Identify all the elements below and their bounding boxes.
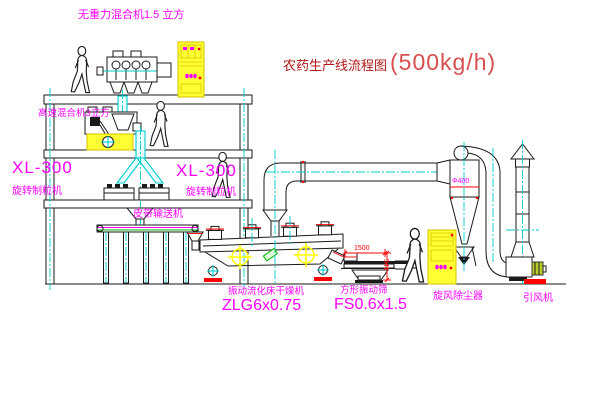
page-title: 农药生产线流程图 (500kg/h) bbox=[283, 49, 496, 76]
indicator-light-icon bbox=[451, 234, 454, 237]
person-figure bbox=[402, 228, 423, 282]
indicator-light-icon bbox=[198, 48, 201, 51]
granulator-right bbox=[139, 184, 169, 200]
label-granulator-model-left: XL-300 bbox=[12, 159, 73, 176]
dimension-width-label: 1500 bbox=[354, 245, 370, 252]
induced-draft-fan bbox=[506, 257, 546, 284]
fan-base bbox=[524, 279, 546, 284]
label-dryer-name: 振动流化床干燥机 bbox=[228, 287, 304, 297]
roof-slab bbox=[44, 95, 252, 104]
label-weightless-mixer: 无重力混合机1.5 立方 bbox=[78, 10, 184, 21]
label-dryer-model: ZLG6x0.75 bbox=[222, 298, 301, 314]
control-cabinet-2 bbox=[428, 230, 456, 284]
label-cyclone: 旋风除尘器 bbox=[433, 292, 483, 302]
floor-slab-3 bbox=[44, 200, 252, 208]
label-granulator-name-right: 旋转制粒机 bbox=[186, 188, 236, 198]
cyclone-vortex-cap bbox=[454, 146, 468, 160]
dimension-height-label: 541 bbox=[382, 259, 389, 271]
dryer-vibration-motor-right bbox=[314, 264, 332, 281]
dryer-discharge-chute bbox=[328, 250, 346, 264]
cyclone-inlet bbox=[437, 160, 450, 184]
person-figure bbox=[71, 46, 89, 92]
conveyor-legs bbox=[104, 232, 189, 283]
granulator-left bbox=[104, 184, 134, 200]
label-high-speed-mixer: 高速混合机3立方 bbox=[38, 109, 110, 119]
cad-flow-diagram: 无重力混合机1.5 立方 农药生产线流程图 (500kg/h) 高速混合机3立方… bbox=[0, 0, 600, 403]
label-granulator-name-left: 旋转制粒机 bbox=[12, 187, 62, 197]
belt-conveyor bbox=[97, 225, 203, 283]
label-induced-draft-fan: 引风机 bbox=[523, 294, 553, 304]
label-screen-name: 方形振动筛 bbox=[340, 286, 388, 296]
label-granulator-model-right: XL-300 bbox=[176, 162, 237, 179]
label-screen-model: FS0.6x1.5 bbox=[334, 297, 407, 313]
title-text: 农药生产线流程图 bbox=[283, 55, 387, 74]
indicator-light-icon bbox=[450, 267, 453, 270]
indicator-light-icon bbox=[199, 77, 202, 80]
fan-motor bbox=[532, 262, 543, 275]
label-belt-conveyor: 皮带输送机 bbox=[133, 210, 183, 220]
screen-base bbox=[352, 270, 388, 283]
label-cyclone-size: Φ400 bbox=[452, 178, 469, 185]
dryer-vibration-motor-left bbox=[204, 265, 222, 282]
fan-housing bbox=[506, 257, 532, 277]
fluid-bed-dryer bbox=[200, 216, 346, 282]
control-cabinet-1 bbox=[178, 42, 204, 97]
title-capacity: (500kg/h) bbox=[390, 49, 496, 76]
person-figure bbox=[150, 101, 168, 146]
